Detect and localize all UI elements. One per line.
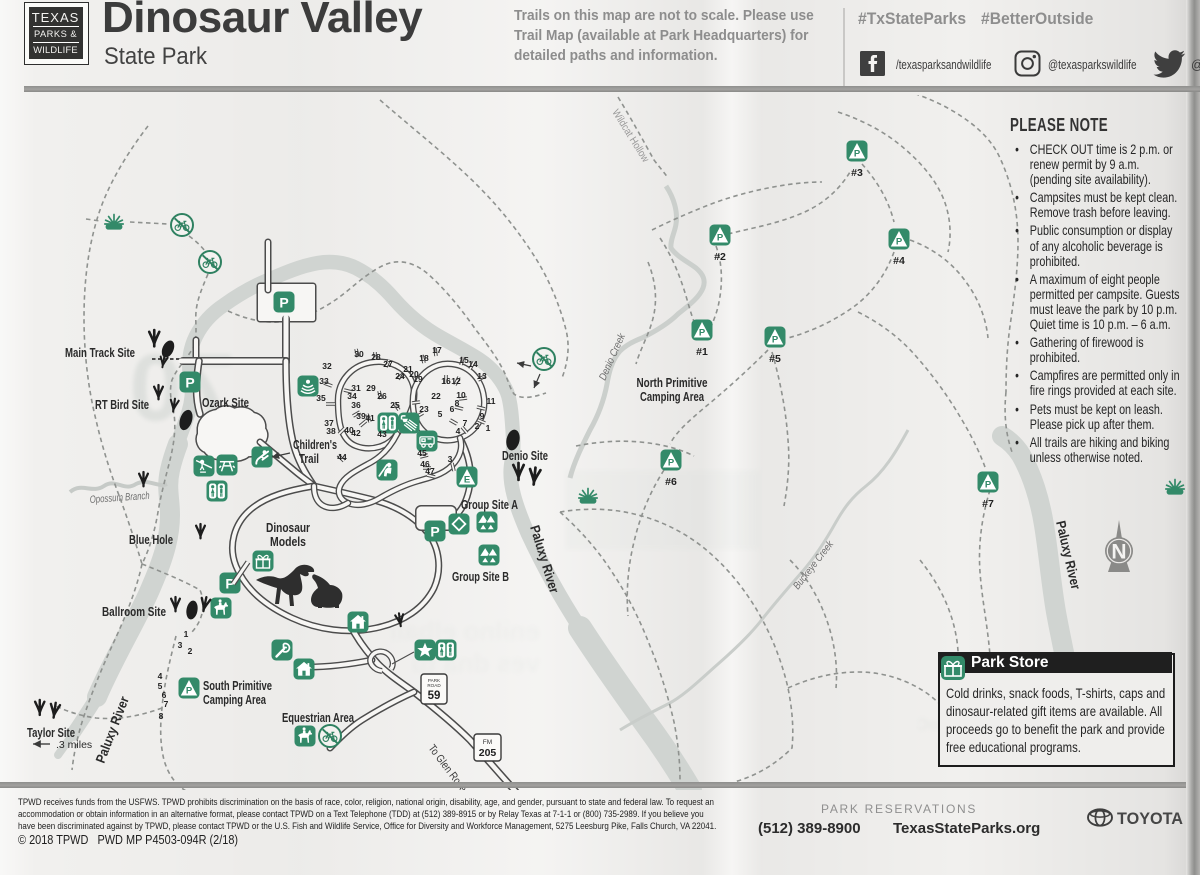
svg-text:3: 3 [448,454,453,464]
svg-text:4: 4 [158,671,163,681]
svg-text:Models: Models [270,535,306,549]
svg-text:14: 14 [468,359,478,369]
svg-text:#2: #2 [714,251,726,263]
svg-text:43: 43 [377,429,387,439]
svg-text:29: 29 [366,383,376,393]
svg-text:TOYOTA: TOYOTA [1117,810,1183,828]
svg-text:4: 4 [456,426,461,436]
svg-text:8: 8 [455,398,460,408]
svg-text:205: 205 [479,747,497,759]
svg-text:27: 27 [383,359,393,369]
svg-text:7: 7 [164,699,169,709]
svg-text:36: 36 [351,400,361,410]
svg-text:#3: #3 [851,167,863,179]
svg-text:8: 8 [159,711,164,721]
svg-text:6: 6 [450,404,455,414]
svg-text:59: 59 [428,690,441,702]
svg-text:RT Bird Site: RT Bird Site [95,398,149,412]
svg-text:42: 42 [351,428,361,438]
svg-text:Denio Creek: Denio Creek [597,331,629,382]
svg-text:1: 1 [184,629,189,639]
svg-text:22: 22 [431,391,441,401]
svg-text:Trail: Trail [299,452,319,466]
svg-text:ROAD: ROAD [427,683,441,688]
svg-text:Ozark Site: Ozark Site [202,396,249,410]
svg-text:45: 45 [417,448,427,458]
svg-text:28: 28 [371,352,381,362]
svg-text:Buckeye Creek: Buckeye Creek [791,538,837,592]
svg-text:44: 44 [337,452,347,462]
svg-text:Opossum Branch: Opossum Branch [89,490,150,506]
svg-text:30: 30 [354,349,364,359]
svg-text:FM: FM [483,739,492,746]
svg-text:Wildcat Hollow: Wildcat Hollow [609,107,651,165]
svg-text:38: 38 [326,426,336,436]
svg-text:Equestrian Area: Equestrian Area [282,711,355,725]
svg-text:3: 3 [178,640,183,650]
svg-text:South Primitive: South Primitive [203,679,272,693]
svg-text:Main Track Site: Main Track Site [65,346,135,360]
svg-text:#1: #1 [696,346,708,358]
svg-text:32: 32 [322,361,332,371]
svg-text:16: 16 [441,376,451,386]
svg-text:Taylor Site: Taylor Site [27,726,75,740]
svg-text:.3 miles: .3 miles [56,739,92,751]
svg-text:5: 5 [438,409,443,419]
svg-text:23: 23 [419,404,429,414]
svg-text:35: 35 [316,393,326,403]
svg-text:#6: #6 [665,476,677,488]
svg-text:Ballroom Site: Ballroom Site [102,605,166,619]
svg-text:#7: #7 [982,498,994,510]
svg-text:Group Site A: Group Site A [461,498,518,512]
svg-text:Children's: Children's [293,438,337,452]
svg-text:N: N [1111,541,1126,564]
svg-text:Camping Area: Camping Area [203,693,267,707]
svg-text:2: 2 [188,646,193,656]
svg-text:19: 19 [413,374,423,384]
svg-text:33: 33 [319,376,329,386]
svg-text:12: 12 [451,376,461,386]
svg-text:E: E [464,475,470,486]
svg-text:25: 25 [390,400,400,410]
svg-text:47: 47 [425,466,435,476]
svg-text:1: 1 [486,423,491,433]
svg-text:17: 17 [432,345,442,355]
svg-text:11: 11 [487,396,496,406]
svg-text:26: 26 [377,391,387,401]
svg-text:#5: #5 [769,353,781,365]
svg-text:Blue Hole: Blue Hole [129,533,173,547]
svg-text:7: 7 [463,418,468,428]
svg-text:18: 18 [419,353,429,363]
svg-text:Dinosaur: Dinosaur [266,521,310,535]
svg-text:North Primitive: North Primitive [637,376,708,390]
svg-text:enilno elbali: enilno elbali [390,616,540,646]
svg-text:Group Site B: Group Site B [452,570,509,584]
svg-text:9: 9 [480,411,485,421]
svg-text:13: 13 [477,371,487,381]
svg-text:Denio Site: Denio Site [502,449,548,463]
svg-text:2: 2 [475,421,480,431]
svg-text:#4: #4 [893,255,905,267]
svg-text:41: 41 [365,413,375,423]
svg-text:Camping Area: Camping Area [640,390,705,404]
